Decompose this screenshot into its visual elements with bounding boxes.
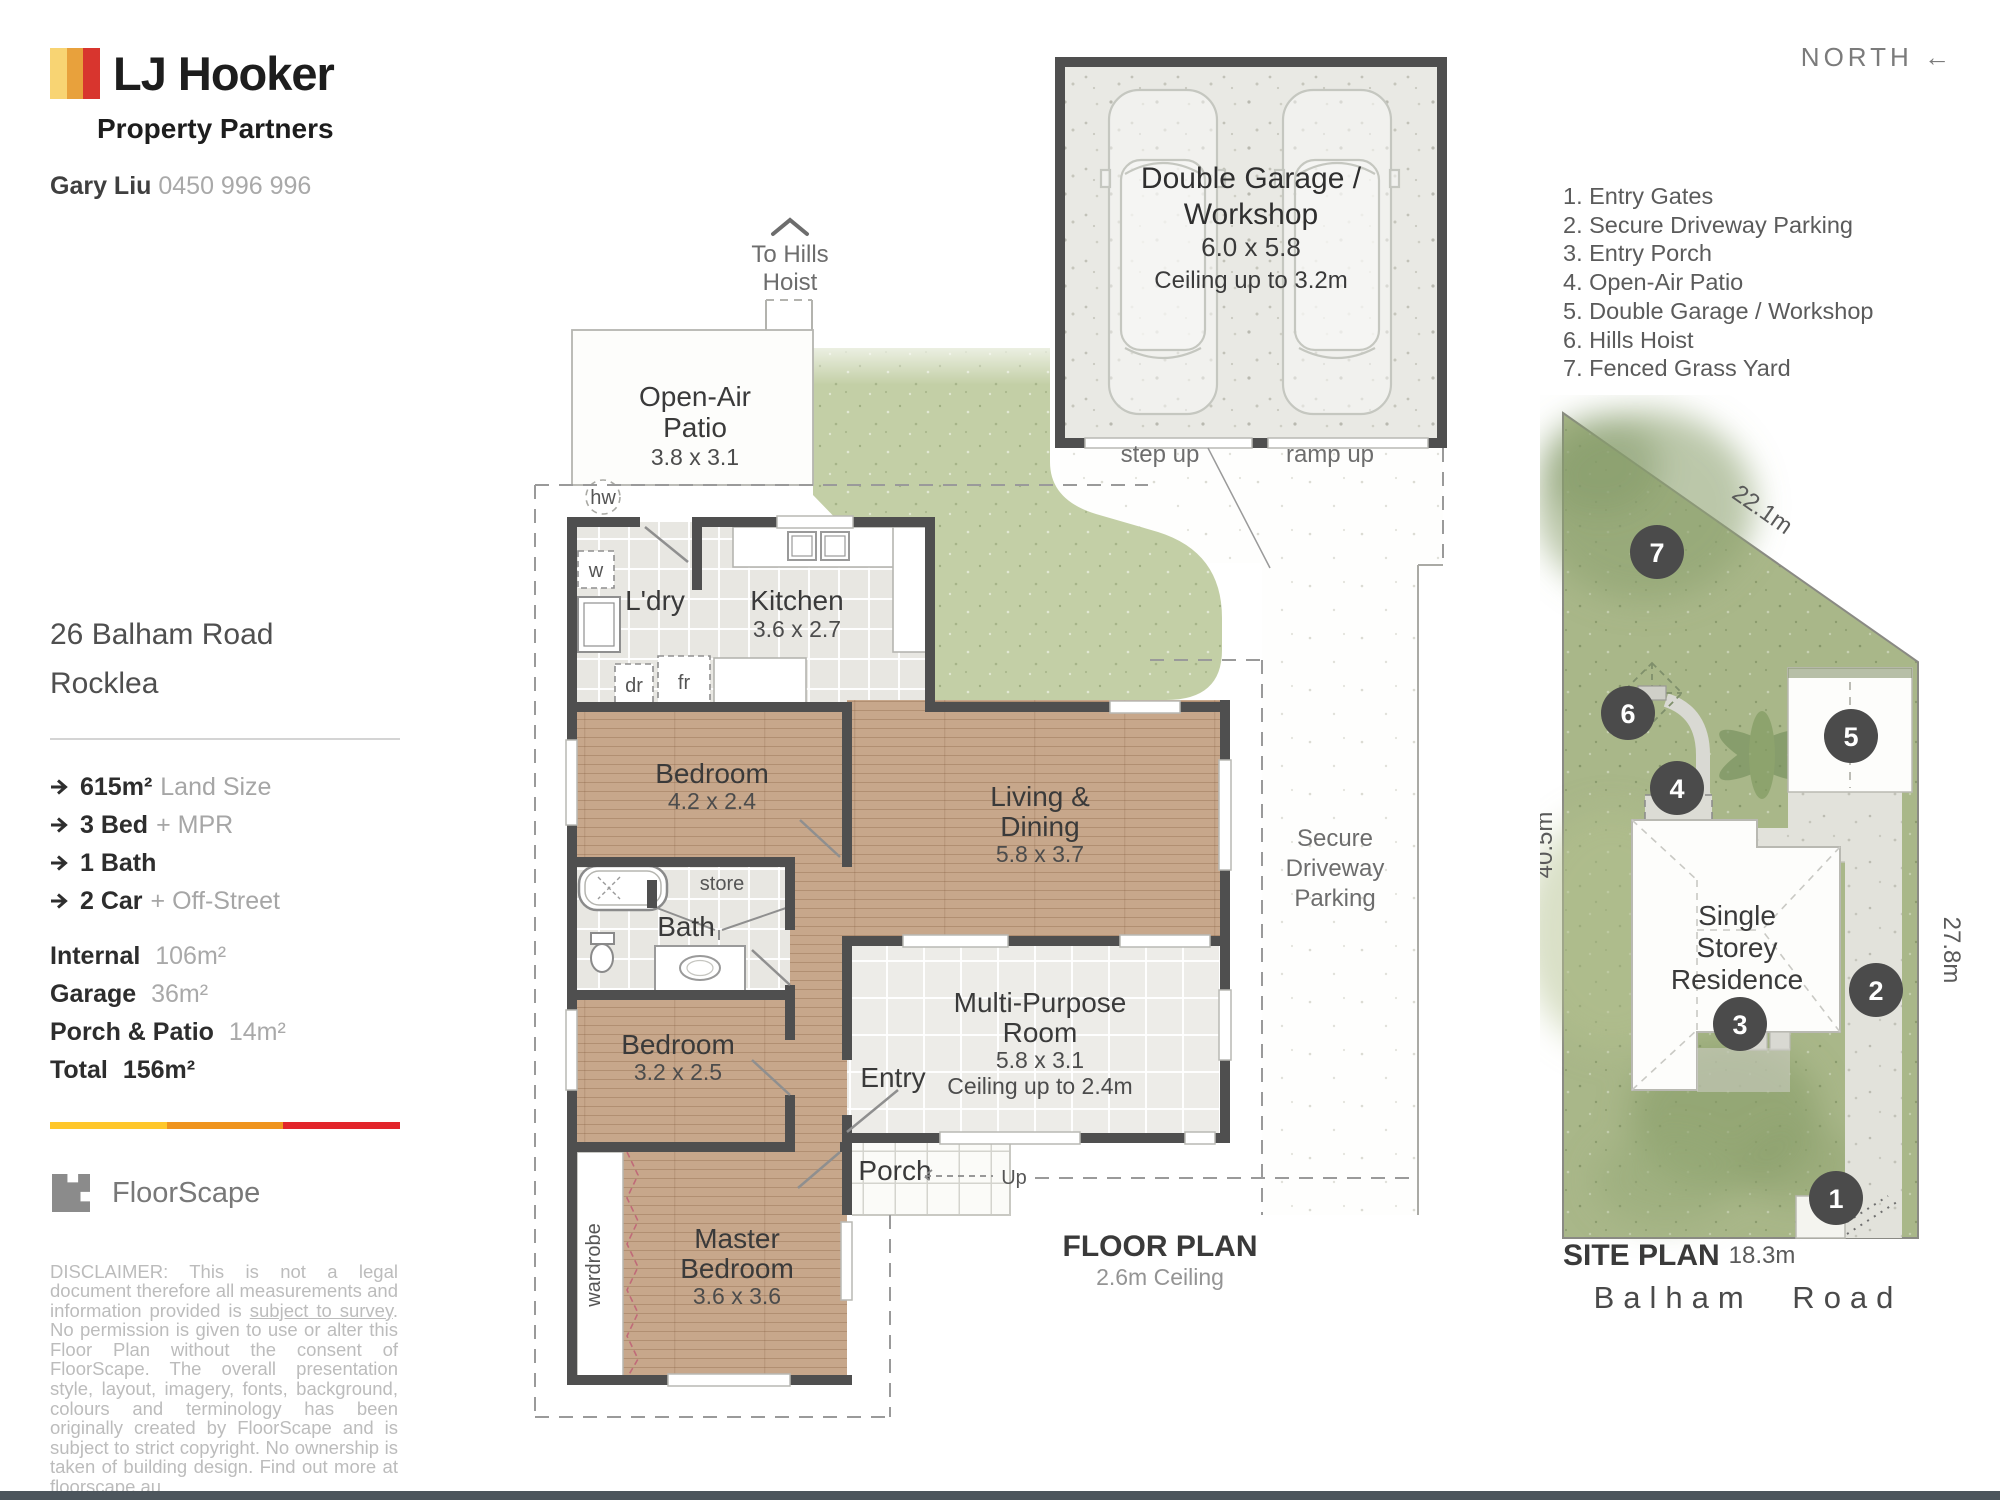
residence-label: Residence [1671, 964, 1803, 995]
kitchen-label: Kitchen [750, 585, 843, 616]
master-label: Bedroom [680, 1253, 794, 1284]
garage-label: Double Garage / [1141, 162, 1362, 195]
legend-item: 2. Secure Driveway Parking [1563, 211, 1873, 240]
legend-item: 1. Entry Gates [1563, 182, 1873, 211]
dryer-label: dr [625, 675, 643, 697]
ldry-label: L'dry [625, 585, 685, 616]
porch-label: Porch [858, 1155, 931, 1186]
marker-1: 1 [1809, 1171, 1863, 1225]
agent-contact: Gary Liu 0450 996 996 [50, 172, 311, 201]
fence-line [1418, 565, 1443, 1215]
garage-label: Workshop [1184, 198, 1319, 231]
divider [50, 738, 400, 740]
bedroom1-dims: 4.2 x 2.4 [668, 788, 756, 814]
master-dims: 3.6 x 3.6 [693, 1283, 781, 1309]
svg-text:6: 6 [1620, 699, 1635, 729]
svg-text:3: 3 [1732, 1010, 1747, 1040]
north-arrow-icon: ← [1924, 42, 1954, 72]
agent-phone: 0450 996 996 [158, 172, 311, 200]
svg-text:Hoist: Hoist [763, 269, 818, 296]
svg-text:To Hills: To Hills [751, 241, 828, 268]
area-total: Total 156m² [50, 1056, 410, 1094]
marker-4: 4 [1650, 761, 1704, 815]
marker-7: 7 [1630, 525, 1684, 579]
svg-text:2: 2 [1868, 976, 1883, 1006]
site-legend: 1. Entry Gates 2. Secure Driveway Parkin… [1563, 182, 1873, 383]
patio-room: Open-Air Patio 3.8 x 3.1 [572, 330, 813, 485]
svg-text:4: 4 [1669, 774, 1684, 804]
north-indicator: NORTH ← [1801, 42, 1954, 73]
fridge-label: fr [678, 672, 691, 694]
marker-3: 3 [1713, 997, 1767, 1051]
washer-label: w [588, 560, 604, 582]
floor-plan-title: FLOOR PLAN [1063, 1230, 1258, 1263]
marker-5: 5 [1824, 709, 1878, 763]
up-label: Up [1001, 1167, 1027, 1189]
floor-plan-subtitle: 2.6m Ceiling [1096, 1264, 1224, 1290]
living-dims: 5.8 x 3.7 [996, 841, 1084, 867]
legend-item: 4. Open-Air Patio [1563, 268, 1873, 297]
entry-corridor-floor [790, 862, 847, 1147]
stat-arrow-icon [50, 854, 80, 872]
svg-text:3.8 x 3.1: 3.8 x 3.1 [651, 444, 739, 470]
brand-colorbar [50, 1122, 400, 1129]
deck-shadow [1697, 1048, 1790, 1092]
kitchen-dims: 3.6 x 2.7 [753, 616, 841, 642]
garage-dims: 6.0 x 5.8 [1201, 232, 1301, 262]
living-label: Living & [990, 781, 1090, 812]
ljhooker-logo-icon [50, 48, 100, 99]
svg-text:5: 5 [1843, 722, 1858, 752]
street-label: Balham Road [1594, 1280, 1903, 1315]
laundry-tub-icon [578, 597, 620, 652]
garage-ceiling: Ceiling up to 3.2m [1154, 267, 1347, 294]
svg-text:Open-Air: Open-Air [639, 381, 751, 412]
marker-6: 6 [1601, 686, 1655, 740]
chevron-up-icon [773, 220, 807, 234]
property-stats: 615m² Land Size 3 Bed + MPR 1 Bath 2 Car… [50, 768, 410, 920]
driveway-label: Secure [1297, 825, 1373, 852]
site-plan: Single Storey Residence 7 6 5 4 3 2 1 22… [1540, 395, 2000, 1325]
bedroom1-label: Bedroom [655, 758, 769, 789]
toilet-icon [591, 933, 614, 972]
vanity-icon [655, 946, 745, 991]
floorplan-page: LJ Hooker Property Partners Gary Liu 045… [0, 0, 2000, 1500]
dim-left: 40.5m [1540, 812, 1558, 879]
site-plan-title: SITE PLAN [1563, 1239, 1720, 1272]
area-summary: Internal 106m² Garage 36m² Porch & Patio… [50, 942, 410, 1094]
footer-bar [0, 1491, 2000, 1500]
area-internal: Internal 106m² [50, 942, 410, 980]
stat-land: 615m² Land Size [50, 768, 410, 806]
dim-bottom: 18.3m [1729, 1242, 1796, 1269]
brand-name: LJ Hooker [113, 46, 334, 101]
marker-2: 2 [1849, 963, 1903, 1017]
svg-text:7: 7 [1649, 538, 1664, 568]
address-line1: 26 Balham Road [50, 618, 273, 652]
bedroom2-dims: 3.2 x 2.5 [634, 1059, 722, 1085]
legend-item: 3. Entry Porch [1563, 239, 1873, 268]
bath-label: Bath [657, 911, 715, 942]
ramp-up-label: ramp up [1286, 441, 1374, 468]
residence-label: Storey [1697, 932, 1778, 963]
dim-right: 27.8m [1938, 917, 1965, 984]
driveway-label: Driveway [1286, 855, 1385, 882]
legend-item: 5. Double Garage / Workshop [1563, 297, 1873, 326]
mpr-label: Multi-Purpose [954, 987, 1127, 1018]
address-line2: Rocklea [50, 667, 158, 701]
store-label: store [700, 873, 744, 895]
stat-arrow-icon [50, 816, 80, 834]
stat-bed: 3 Bed + MPR [50, 806, 410, 844]
legend-item: 7. Fenced Grass Yard [1563, 354, 1873, 383]
floorscape-name: FloorScape [112, 1177, 260, 1210]
floorscape-icon [52, 1170, 90, 1216]
stat-arrow-icon [50, 778, 80, 796]
entry-label: Entry [860, 1062, 925, 1093]
wardrobe-label: wardrobe [583, 1223, 605, 1307]
brand-subtitle: Property Partners [97, 113, 334, 145]
residence-label: Single [1698, 900, 1776, 931]
svg-text:1: 1 [1828, 1184, 1843, 1214]
disclaimer-text: DISCLAIMER: This is not a legal document… [50, 1262, 398, 1497]
agent-name: Gary Liu [50, 172, 151, 200]
svg-text:hw: hw [590, 487, 616, 509]
floor-plan: Double Garage / Workshop 6.0 x 5.8 Ceili… [430, 30, 1470, 1440]
stat-bath: 1 Bath [50, 844, 410, 882]
area-garage: Garage 36m² [50, 980, 410, 1018]
stat-car: 2 Car + Off-Street [50, 882, 410, 920]
living-label: Dining [1000, 811, 1079, 842]
garage-room: Double Garage / Workshop 6.0 x 5.8 Ceili… [1055, 57, 1447, 448]
to-hills-hoist: To Hills Hoist [751, 220, 828, 340]
driveway-label: Parking [1294, 885, 1375, 912]
step-up-label: step up [1121, 441, 1200, 468]
master-label: Master [694, 1223, 780, 1254]
mpr-dims: 5.8 x 3.1 [996, 1047, 1084, 1073]
legend-item: 6. Hills Hoist [1563, 326, 1873, 355]
floorscape-logo: FloorScape [52, 1170, 260, 1216]
mpr-label: Room [1003, 1017, 1078, 1048]
area-porch-patio: Porch & Patio 14m² [50, 1018, 410, 1056]
svg-text:Patio: Patio [663, 412, 727, 443]
stat-arrow-icon [50, 892, 80, 910]
mpr-ceiling: Ceiling up to 2.4m [947, 1073, 1132, 1099]
bedroom2-label: Bedroom [621, 1029, 735, 1060]
